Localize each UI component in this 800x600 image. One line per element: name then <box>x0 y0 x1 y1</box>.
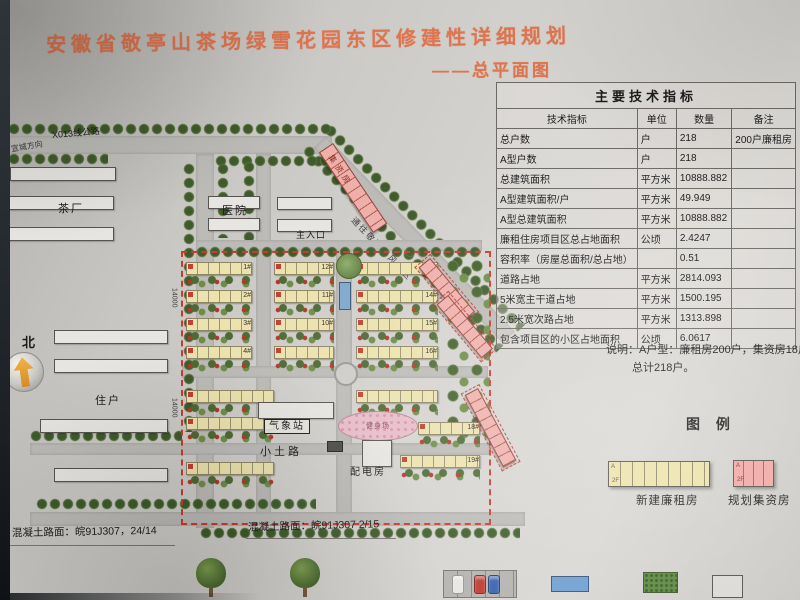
cell-unit: 平方米 <box>637 289 676 309</box>
table-note-line1: 说明：A户型：廉租房200户，集资房18户。 <box>606 344 800 356</box>
building-number: 11# <box>322 292 333 299</box>
cell-indicator: A型建筑面积/户 <box>497 189 638 209</box>
cell-unit <box>637 249 676 269</box>
photo-edge-bottom <box>10 593 260 600</box>
building-number: 18# <box>467 424 479 431</box>
cell-quantity: 10888.882 <box>676 169 731 189</box>
table-row: 廉租住房项目区总占地面积公顷2.4247 <box>497 229 796 249</box>
building-row: 2# <box>186 290 252 316</box>
building-outline <box>10 167 116 181</box>
power-room-building <box>362 440 392 467</box>
tech-indicator-table: 主要技术指标 技术指标 单位 数量 备注 总户数户218200户廉租房 A型户数… <box>496 82 796 349</box>
floor-mark: 2F <box>612 478 619 484</box>
building-row: 16# <box>356 346 438 372</box>
building-number: 16# <box>425 348 437 355</box>
weather-station-label: 气象站 <box>264 419 310 434</box>
photo-edge-left <box>0 0 10 600</box>
building-number: 15# <box>425 320 437 327</box>
building-outline <box>54 468 168 482</box>
building-row: 10# <box>274 318 334 344</box>
building-number: 10# <box>321 320 333 327</box>
cell-indicator: 廉租住房项目区总占地面积 <box>497 229 638 249</box>
cell-indicator: 总建筑面积 <box>497 169 638 189</box>
blank-swatch <box>712 575 743 598</box>
table-row: 5米宽主干道占地平方米1500.195 <box>497 289 796 309</box>
table-note-line2: 总计218户。 <box>632 362 694 374</box>
divider-line <box>246 538 396 539</box>
cell-unit: 户 <box>637 149 676 169</box>
table-row: A型建筑面积/户平方米49.949 <box>497 189 796 209</box>
building-outline <box>2 227 114 241</box>
table-row: A型户数户218 <box>497 149 796 169</box>
unit-type-mark: A <box>611 464 615 470</box>
cell-unit: 平方米 <box>637 309 676 329</box>
cell-indicator: 总户数 <box>497 129 638 149</box>
cell-quantity: 2814.093 <box>676 269 731 289</box>
building-number: 12# <box>321 264 333 271</box>
cell-unit: 平方米 <box>637 169 676 189</box>
building-number: 3# <box>243 320 251 327</box>
table-row: 总建筑面积平方米10888.882 <box>497 169 796 189</box>
car-icon <box>474 575 486 594</box>
page-subtitle: ——总平面图 <box>432 56 552 81</box>
cell-quantity: 1500.195 <box>676 289 731 309</box>
cell-quantity: 218 <box>676 129 731 149</box>
green-swatch <box>643 572 678 593</box>
building-outline <box>54 330 168 344</box>
north-label: 北 <box>22 336 35 350</box>
building-number: 4# <box>243 348 251 355</box>
building-row: 19# <box>400 455 480 481</box>
building-row: 12# <box>274 262 334 288</box>
cell-quantity: 10888.882 <box>676 209 731 229</box>
building-outline <box>277 197 332 210</box>
dirt-road-label: 小土路 <box>260 446 302 458</box>
legend-lowrent-swatch: A 2F <box>608 461 710 487</box>
building-row: 4# <box>186 346 252 372</box>
cell-remark <box>732 289 796 309</box>
tree-icon <box>196 558 226 598</box>
col-header: 数量 <box>676 109 731 129</box>
cell-indicator: A型户数 <box>497 149 638 169</box>
building-row: 14# <box>356 290 438 316</box>
col-header: 技术指标 <box>497 109 638 129</box>
building-row: 15# <box>356 318 438 344</box>
hospital-label: 医院 <box>222 205 248 217</box>
dimension-label: 14000 <box>170 288 178 307</box>
building-row: 18# <box>418 422 480 448</box>
park-circle <box>336 253 362 279</box>
table-row: A型总建筑面积平方米10888.882 <box>497 209 796 229</box>
power-room-label: 配电房 <box>350 467 386 478</box>
cell-indicator: 容积率（房屋总面积/总占地） <box>497 249 638 269</box>
building-outline <box>208 218 260 231</box>
building-row: 1# <box>186 262 252 288</box>
cell-remark <box>732 229 796 249</box>
floor-mark: 2F <box>737 477 744 483</box>
cell-indicator: A型总建筑面积 <box>497 209 638 229</box>
legend-lowrent-label: 新建廉租房 <box>636 495 699 508</box>
tree-icon <box>290 558 320 598</box>
table-grid: 技术指标 单位 数量 备注 总户数户218200户廉租房 A型户数户218 总建… <box>496 108 796 349</box>
building-row: 3# <box>186 318 252 344</box>
table-header-row: 技术指标 单位 数量 备注 <box>497 109 796 129</box>
building-number: 19# <box>467 457 479 464</box>
cell-indicator: 5米宽主干道占地 <box>497 289 638 309</box>
dimension-label: 14000 <box>170 398 178 417</box>
cell-quantity: 0.51 <box>676 249 731 269</box>
cell-remark <box>732 149 796 169</box>
cell-unit: 公顷 <box>637 229 676 249</box>
building-outline <box>40 419 168 433</box>
cell-remark <box>732 189 796 209</box>
water-swatch <box>551 576 589 592</box>
cell-unit: 户 <box>637 129 676 149</box>
table-title: 主要技术指标 <box>496 82 796 108</box>
cell-remark <box>732 309 796 329</box>
cell-quantity: 49.949 <box>676 189 731 209</box>
cell-remark <box>732 269 796 289</box>
building-outline <box>54 359 168 373</box>
cell-quantity: 2.4247 <box>676 229 731 249</box>
building-row <box>186 417 274 443</box>
cell-unit: 平方米 <box>637 189 676 209</box>
building-number: 1# <box>243 264 251 271</box>
cell-quantity: 1313.898 <box>676 309 731 329</box>
legend-title: 图 例 <box>686 417 736 432</box>
north-arrow-glyph <box>12 356 36 388</box>
roundabout <box>334 362 358 386</box>
residents-label: 住户 <box>95 395 121 407</box>
small-structure <box>327 441 343 452</box>
building-row <box>274 346 334 372</box>
north-arrow-icon <box>4 352 44 392</box>
cell-remark <box>732 209 796 229</box>
cell-indicator: 2.5米宽次路占地 <box>497 309 638 329</box>
cell-remark: 200户廉租房 <box>732 129 796 149</box>
building-number: 2# <box>243 292 251 299</box>
water-pool <box>339 282 351 310</box>
cell-quantity: 218 <box>676 149 731 169</box>
cell-remark <box>732 169 796 189</box>
parking-swatch <box>443 570 517 598</box>
weather-station-building <box>258 402 334 419</box>
table-row: 道路占地平方米2814.093 <box>497 269 796 289</box>
fitness-ground: 健身场 <box>338 411 418 441</box>
table-row: 2.5米宽次路占地平方米1313.898 <box>497 309 796 329</box>
legend-jizifang-swatch: A 2F <box>733 460 774 487</box>
cell-unit: 平方米 <box>637 209 676 229</box>
car-icon <box>488 575 500 594</box>
cell-remark <box>732 249 796 269</box>
table-row: 容积率（房屋总面积/总占地）0.51 <box>497 249 796 269</box>
main-entrance-label: 主入口 <box>296 231 326 241</box>
cell-indicator: 道路占地 <box>497 269 638 289</box>
building-row: 11# <box>274 290 334 316</box>
car-icon <box>452 575 464 594</box>
building-number: 14# <box>425 292 437 299</box>
tree-line <box>215 155 332 167</box>
cell-unit: 平方米 <box>637 269 676 289</box>
divider-line <box>10 545 175 546</box>
legend-jizifang-label: 规划集资房 <box>728 495 791 508</box>
col-header: 单位 <box>637 109 676 129</box>
building-row <box>186 462 274 488</box>
tree-line <box>8 153 108 165</box>
table-row: 总户数户218200户廉租房 <box>497 129 796 149</box>
col-header: 备注 <box>732 109 796 129</box>
tea-factory-label: 茶厂 <box>58 203 84 215</box>
unit-type-mark: A <box>736 463 740 469</box>
